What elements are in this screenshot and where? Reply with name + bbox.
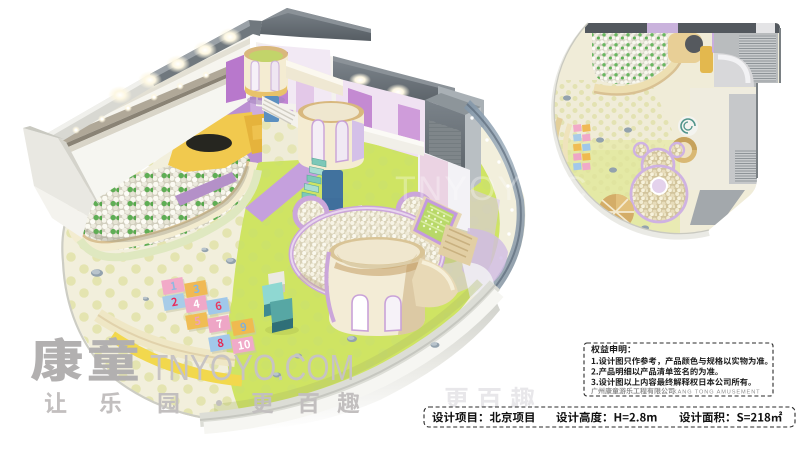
svg-text:KANG TONG AMUSEMENT: KANG TONG AMUSEMENT	[673, 390, 760, 396]
svg-text:TNYOYO.C: TNYOYO.C	[395, 170, 589, 208]
svg-text:TNYOYO.COM: TNYOYO.COM	[150, 348, 354, 388]
